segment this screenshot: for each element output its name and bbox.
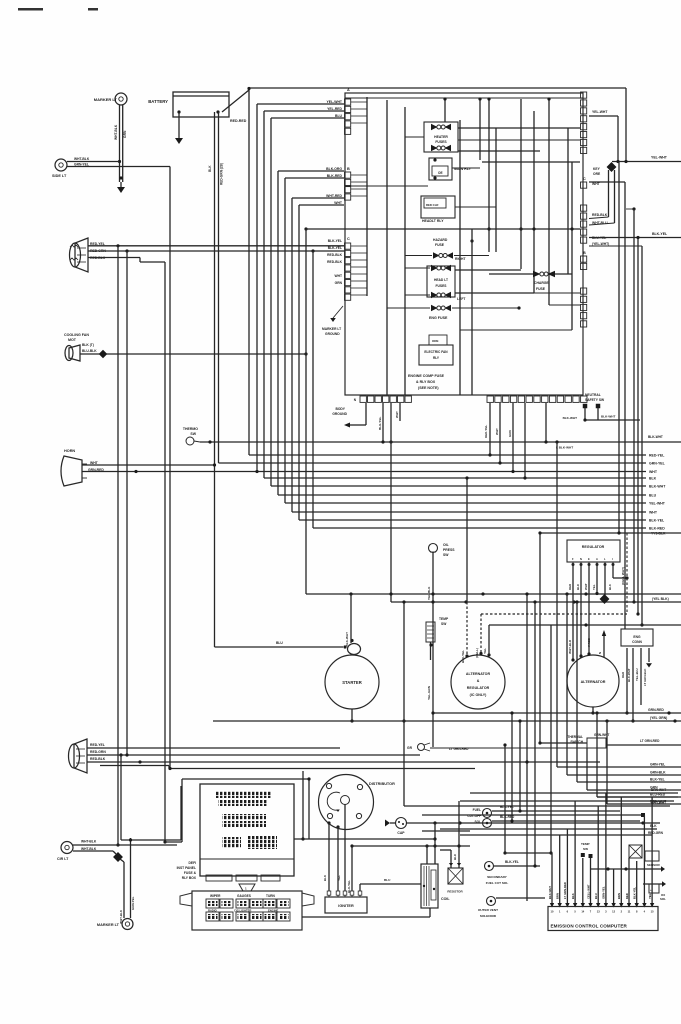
svg-text:BLK-WHT: BLK-WHT xyxy=(601,415,616,419)
svg-text:REGULATOR: REGULATOR xyxy=(582,545,605,549)
svg-text:CONN: CONN xyxy=(632,640,642,644)
svg-text:FUEL: FUEL xyxy=(473,808,481,812)
svg-text:EMISSION CONTROL COMPUTER: EMISSION CONTROL COMPUTER xyxy=(551,924,628,929)
svg-text:BLU-BLK: BLU-BLK xyxy=(82,349,97,353)
svg-text:GAUGES: GAUGES xyxy=(237,894,251,898)
svg-text:FUSES: FUSES xyxy=(435,140,447,144)
svg-text:YEL-WHT: YEL-WHT xyxy=(649,502,666,506)
svg-text:ENGINE: ENGINE xyxy=(268,909,279,913)
svg-text:FUSE: FUSE xyxy=(435,243,445,247)
svg-text:BLK-YEL: BLK-YEL xyxy=(633,887,637,899)
svg-text:RED-RED: RED-RED xyxy=(230,119,247,123)
svg-text:YEL-RED: YEL-RED xyxy=(327,107,342,111)
svg-text:HORN: HORN xyxy=(64,449,75,453)
svg-text:SAFETY SW: SAFETY SW xyxy=(585,398,605,402)
svg-text:HEATER: HEATER xyxy=(434,135,448,139)
svg-text:BLK-YEL: BLK-YEL xyxy=(505,860,519,864)
svg-text:OUTER VENT: OUTER VENT xyxy=(478,908,498,912)
svg-text:BLU: BLU xyxy=(453,854,457,860)
svg-text:LT GRN-BLK: LT GRN-BLK xyxy=(643,668,647,686)
svg-text:ENGINE COMP FUSE: ENGINE COMP FUSE xyxy=(408,374,445,378)
svg-text:B: B xyxy=(347,167,350,171)
svg-text:ALTERNATOR: ALTERNATOR xyxy=(466,672,491,676)
svg-text:BLU: BLU xyxy=(649,494,657,498)
svg-text:MARKER LT: MARKER LT xyxy=(322,327,341,331)
svg-text:BLU: BLU xyxy=(576,584,580,590)
svg-text:BLK: BLK xyxy=(650,824,657,828)
svg-text:RLY: RLY xyxy=(433,356,440,360)
svg-text:YEL-WHT: YEL-WHT xyxy=(592,110,608,114)
svg-text:YEL-GRN: YEL-GRN xyxy=(427,685,431,700)
svg-text:THERMAL: THERMAL xyxy=(567,735,583,739)
svg-text:BLK-WHT: BLK-WHT xyxy=(648,435,663,439)
svg-text:RIGHT: RIGHT xyxy=(455,257,466,261)
svg-text:RED-GRN (2B): RED-GRN (2B) xyxy=(220,163,224,185)
svg-text:& RLY BOX: & RLY BOX xyxy=(416,380,436,384)
svg-text:BODY: BODY xyxy=(335,407,345,411)
svg-text:RED: RED xyxy=(568,584,572,590)
svg-text:(SEE NOTE): (SEE NOTE) xyxy=(418,386,439,390)
svg-text:WHT-BLU: WHT-BLU xyxy=(592,221,608,225)
svg-text:RED: RED xyxy=(625,893,629,899)
svg-text:YY1-BLK: YY1-BLK xyxy=(651,532,666,536)
svg-text:RED-YEL: RED-YEL xyxy=(90,743,105,747)
svg-text:MOT: MOT xyxy=(68,338,77,342)
svg-text:BLK-YEL: BLK-YEL xyxy=(328,246,342,250)
svg-text:ENG: ENG xyxy=(633,635,641,639)
svg-text:COOLING FAN: COOLING FAN xyxy=(64,333,89,337)
svg-text:CIG LIGHTER: CIG LIGHTER xyxy=(234,909,251,913)
svg-text:WHT: WHT xyxy=(649,470,658,474)
svg-text:L BLK-WHT: L BLK-WHT xyxy=(556,446,573,450)
svg-text:A: A xyxy=(347,88,350,92)
svg-text:WHT-BLK: WHT-BLK xyxy=(74,157,90,161)
svg-text:YEL-BLU: YEL-BLU xyxy=(635,668,639,681)
svg-text:MARKER LT: MARKER LT xyxy=(97,923,120,927)
svg-text:SENSOR: SENSOR xyxy=(647,863,661,867)
svg-text:&: & xyxy=(477,679,480,683)
svg-text:CHARGE: CHARGE xyxy=(534,281,549,285)
svg-text:RED-YEL: RED-YEL xyxy=(649,454,665,458)
svg-text:BLK-YEL: BLK-YEL xyxy=(328,239,342,243)
svg-text:BLK-WHT: BLK-WHT xyxy=(649,485,666,489)
svg-text:FUSE: FUSE xyxy=(536,287,546,291)
svg-text:GRN-BLK: GRN-BLK xyxy=(650,771,666,775)
svg-text:SW: SW xyxy=(583,847,588,851)
svg-text:BLK-YEL: BLK-YEL xyxy=(378,416,382,430)
svg-text:BLK-YEL: BLK-YEL xyxy=(650,778,665,782)
svg-text:WHT: WHT xyxy=(584,583,588,590)
svg-text:C: C xyxy=(583,177,586,181)
svg-text:BLU: BLU xyxy=(335,114,343,118)
svg-text:RED-GRN: RED-GRN xyxy=(648,831,664,835)
svg-text:FUSES: FUSES xyxy=(436,284,448,288)
svg-text:FUSE &: FUSE & xyxy=(184,871,197,875)
svg-text:YEL: YEL xyxy=(337,875,341,881)
svg-text:PRESS: PRESS xyxy=(443,548,455,552)
svg-text:TEMP: TEMP xyxy=(439,617,449,621)
svg-text:GRN: GRN xyxy=(508,430,512,437)
svg-text:DEFI: DEFI xyxy=(188,861,196,865)
svg-text:BLU: BLU xyxy=(384,878,391,882)
svg-text:REGULATOR: REGULATOR xyxy=(467,686,490,690)
svg-text:KEY: KEY xyxy=(593,167,601,171)
svg-text:RED CLR: RED CLR xyxy=(426,203,438,207)
svg-text:A: A xyxy=(596,557,598,561)
svg-text:SOL: SOL xyxy=(660,897,666,901)
svg-text:FUEL CUT SOL: FUEL CUT SOL xyxy=(486,881,509,885)
svg-text:HEAD LT: HEAD LT xyxy=(434,278,448,282)
svg-text:BLK-WHT: BLK-WHT xyxy=(345,632,349,647)
svg-text:BLK-ORG: BLK-ORG xyxy=(326,167,342,171)
svg-text:ORE: ORE xyxy=(593,172,601,176)
svg-text:BLK: BLK xyxy=(649,477,657,481)
svg-text:LT GRN-RED: LT GRN-RED xyxy=(563,882,567,899)
svg-text:BLK: BLK xyxy=(208,165,212,172)
svg-text:RED-YEL: RED-YEL xyxy=(484,425,488,438)
svg-text:SW: SW xyxy=(443,553,449,557)
svg-text:GRN-YEL: GRN-YEL xyxy=(131,896,135,910)
svg-text:BLU: BLU xyxy=(594,893,598,899)
svg-text:THERMO: THERMO xyxy=(183,427,198,431)
svg-text:ELECTRIC FAN: ELECTRIC FAN xyxy=(424,350,448,354)
svg-text:INST PANEL: INST PANEL xyxy=(177,866,196,870)
svg-text:GRN-RED: GRN-RED xyxy=(648,708,664,712)
svg-text:+: + xyxy=(650,888,652,892)
svg-text:(YEL BLK): (YEL BLK) xyxy=(652,597,669,601)
svg-text:BRN: BRN xyxy=(556,893,560,899)
svg-text:BLU: BLU xyxy=(276,641,283,645)
svg-text:STARTER: STARTER xyxy=(342,680,361,685)
svg-text:ENG FUSE: ENG FUSE xyxy=(429,316,448,320)
svg-text:MARKER LT: MARKER LT xyxy=(94,97,118,102)
svg-text:(CELL): (CELL) xyxy=(475,648,479,658)
svg-text:B: B xyxy=(583,251,586,255)
svg-text:RED: RED xyxy=(621,672,625,678)
svg-text:Y-RED: Y-RED xyxy=(587,637,591,647)
svg-text:RED-BLK: RED-BLK xyxy=(592,213,608,217)
svg-text:SOL: SOL xyxy=(474,820,481,824)
svg-text:COIL: COIL xyxy=(441,897,450,901)
svg-text:E: E xyxy=(588,557,590,561)
svg-text:WHT-BLK: WHT-BLK xyxy=(114,124,118,140)
svg-text:WHT-BLU: WHT-BLU xyxy=(568,640,572,654)
svg-text:WHT-RED: WHT-RED xyxy=(326,194,342,198)
svg-text:RED-BLK: RED-BLK xyxy=(90,757,106,761)
svg-text:BLK-WHT: BLK-WHT xyxy=(627,668,631,682)
svg-text:SECONDARY: SECONDARY xyxy=(487,875,508,879)
svg-text:LT GRN-RED: LT GRN-RED xyxy=(640,739,660,743)
svg-text:BLK: BLK xyxy=(608,583,612,590)
svg-text:GROUND: GROUND xyxy=(332,412,347,416)
svg-text:RED-WHT: RED-WHT xyxy=(651,801,666,805)
svg-text:CELL-WHT: CELL-WHT xyxy=(586,884,590,899)
svg-text:BLK: BLK xyxy=(571,893,575,899)
svg-text:SOLENOID: SOLENOID xyxy=(480,914,497,918)
svg-text:ALTERNATOR: ALTERNATOR xyxy=(581,680,606,684)
svg-text:TEMP: TEMP xyxy=(581,842,590,846)
svg-text:GRN-YEL: GRN-YEL xyxy=(74,162,89,166)
svg-text:HEADLT RLY: HEADLT RLY xyxy=(422,219,444,223)
svg-text:YEL: YEL xyxy=(592,584,596,590)
svg-text:OIL: OIL xyxy=(443,543,449,547)
svg-text:TURN: TURN xyxy=(266,894,276,898)
svg-text:BLK-RED: BLK-RED xyxy=(327,174,343,178)
svg-text:WHT-BLK: WHT-BLK xyxy=(81,840,97,844)
svg-text:N: N xyxy=(598,652,602,654)
svg-text:NEUTRAL: NEUTRAL xyxy=(585,393,601,397)
svg-text:YEL-WHT: YEL-WHT xyxy=(327,100,343,104)
svg-text:YEL: YEL xyxy=(648,893,652,899)
svg-text:WHT: WHT xyxy=(495,428,499,435)
svg-text:DISTRIBUTOR: DISTRIBUTOR xyxy=(369,782,395,786)
svg-text:WHT: WHT xyxy=(334,201,343,205)
svg-text:BRN-WHT: BRN-WHT xyxy=(651,788,666,792)
svg-text:(CELL WHT): (CELL WHT) xyxy=(621,567,625,585)
svg-text:(IC ONLY): (IC ONLY) xyxy=(470,693,487,697)
svg-text:BLK-YEL: BLK-YEL xyxy=(652,232,668,236)
svg-text:LEFT: LEFT xyxy=(457,297,466,301)
svg-text:WHT: WHT xyxy=(649,511,658,515)
svg-text:SIDE LT: SIDE LT xyxy=(52,174,67,178)
svg-text:BLK: BLK xyxy=(323,874,327,881)
svg-text:SW: SW xyxy=(190,432,196,436)
svg-text:BLK (T): BLK (T) xyxy=(82,343,94,347)
svg-text:BLK-YEL: BLK-YEL xyxy=(649,519,665,523)
svg-text:IGNITER: IGNITER xyxy=(338,904,354,908)
svg-text:(YEL GRN): (YEL GRN) xyxy=(650,716,667,720)
svg-text:GRN: GRN xyxy=(123,130,127,138)
svg-text:(YEL-WHT): (YEL-WHT) xyxy=(592,242,609,246)
svg-text:YEL: YEL xyxy=(483,648,487,654)
svg-text:C: C xyxy=(347,237,350,241)
svg-text:RED-BLK: RED-BLK xyxy=(327,260,342,264)
svg-text:RED-GRN: RED-GRN xyxy=(90,750,106,754)
svg-text:GRN-YEL: GRN-YEL xyxy=(650,763,665,767)
svg-text:N: N xyxy=(580,557,582,561)
svg-text:RED-BLK: RED-BLK xyxy=(327,253,342,257)
svg-text:GR: GR xyxy=(407,746,413,750)
svg-text:GRN: GRN xyxy=(335,281,343,285)
svg-text:WIPER: WIPER xyxy=(210,894,221,898)
svg-text:SW: SW xyxy=(441,622,447,626)
svg-text:GRN-YEL: GRN-YEL xyxy=(649,462,666,466)
svg-text:HAZARD: HAZARD xyxy=(433,238,448,242)
svg-text:YEL-WHT: YEL-WHT xyxy=(651,156,668,160)
svg-text:CIR LT: CIR LT xyxy=(57,857,69,861)
svg-text:BRN: BRN xyxy=(617,893,621,899)
svg-text:WHT: WHT xyxy=(334,274,342,278)
svg-text:BLK-YEL: BLK-YEL xyxy=(461,650,465,663)
svg-text:BLK-RED: BLK-RED xyxy=(649,527,665,531)
svg-text:BATTERY: BATTERY xyxy=(148,99,168,104)
svg-text:ORE: ORE xyxy=(432,339,439,343)
svg-text:RADIO: RADIO xyxy=(208,909,217,913)
svg-text:CAP: CAP xyxy=(397,831,405,835)
svg-text:GRN-YEL: GRN-YEL xyxy=(602,886,606,899)
svg-text:RESISTOR: RESISTOR xyxy=(447,890,463,894)
svg-text:RLY BOX: RLY BOX xyxy=(182,876,197,880)
svg-text:GROUND: GROUND xyxy=(325,332,340,336)
svg-text:BLK-WHT: BLK-WHT xyxy=(563,416,578,420)
svg-text:BLK-WHT: BLK-WHT xyxy=(548,886,552,899)
svg-text:OE: OE xyxy=(438,171,443,175)
svg-text:YEL-BLK: YEL-BLK xyxy=(427,586,431,600)
svg-text:WHT: WHT xyxy=(395,411,399,418)
